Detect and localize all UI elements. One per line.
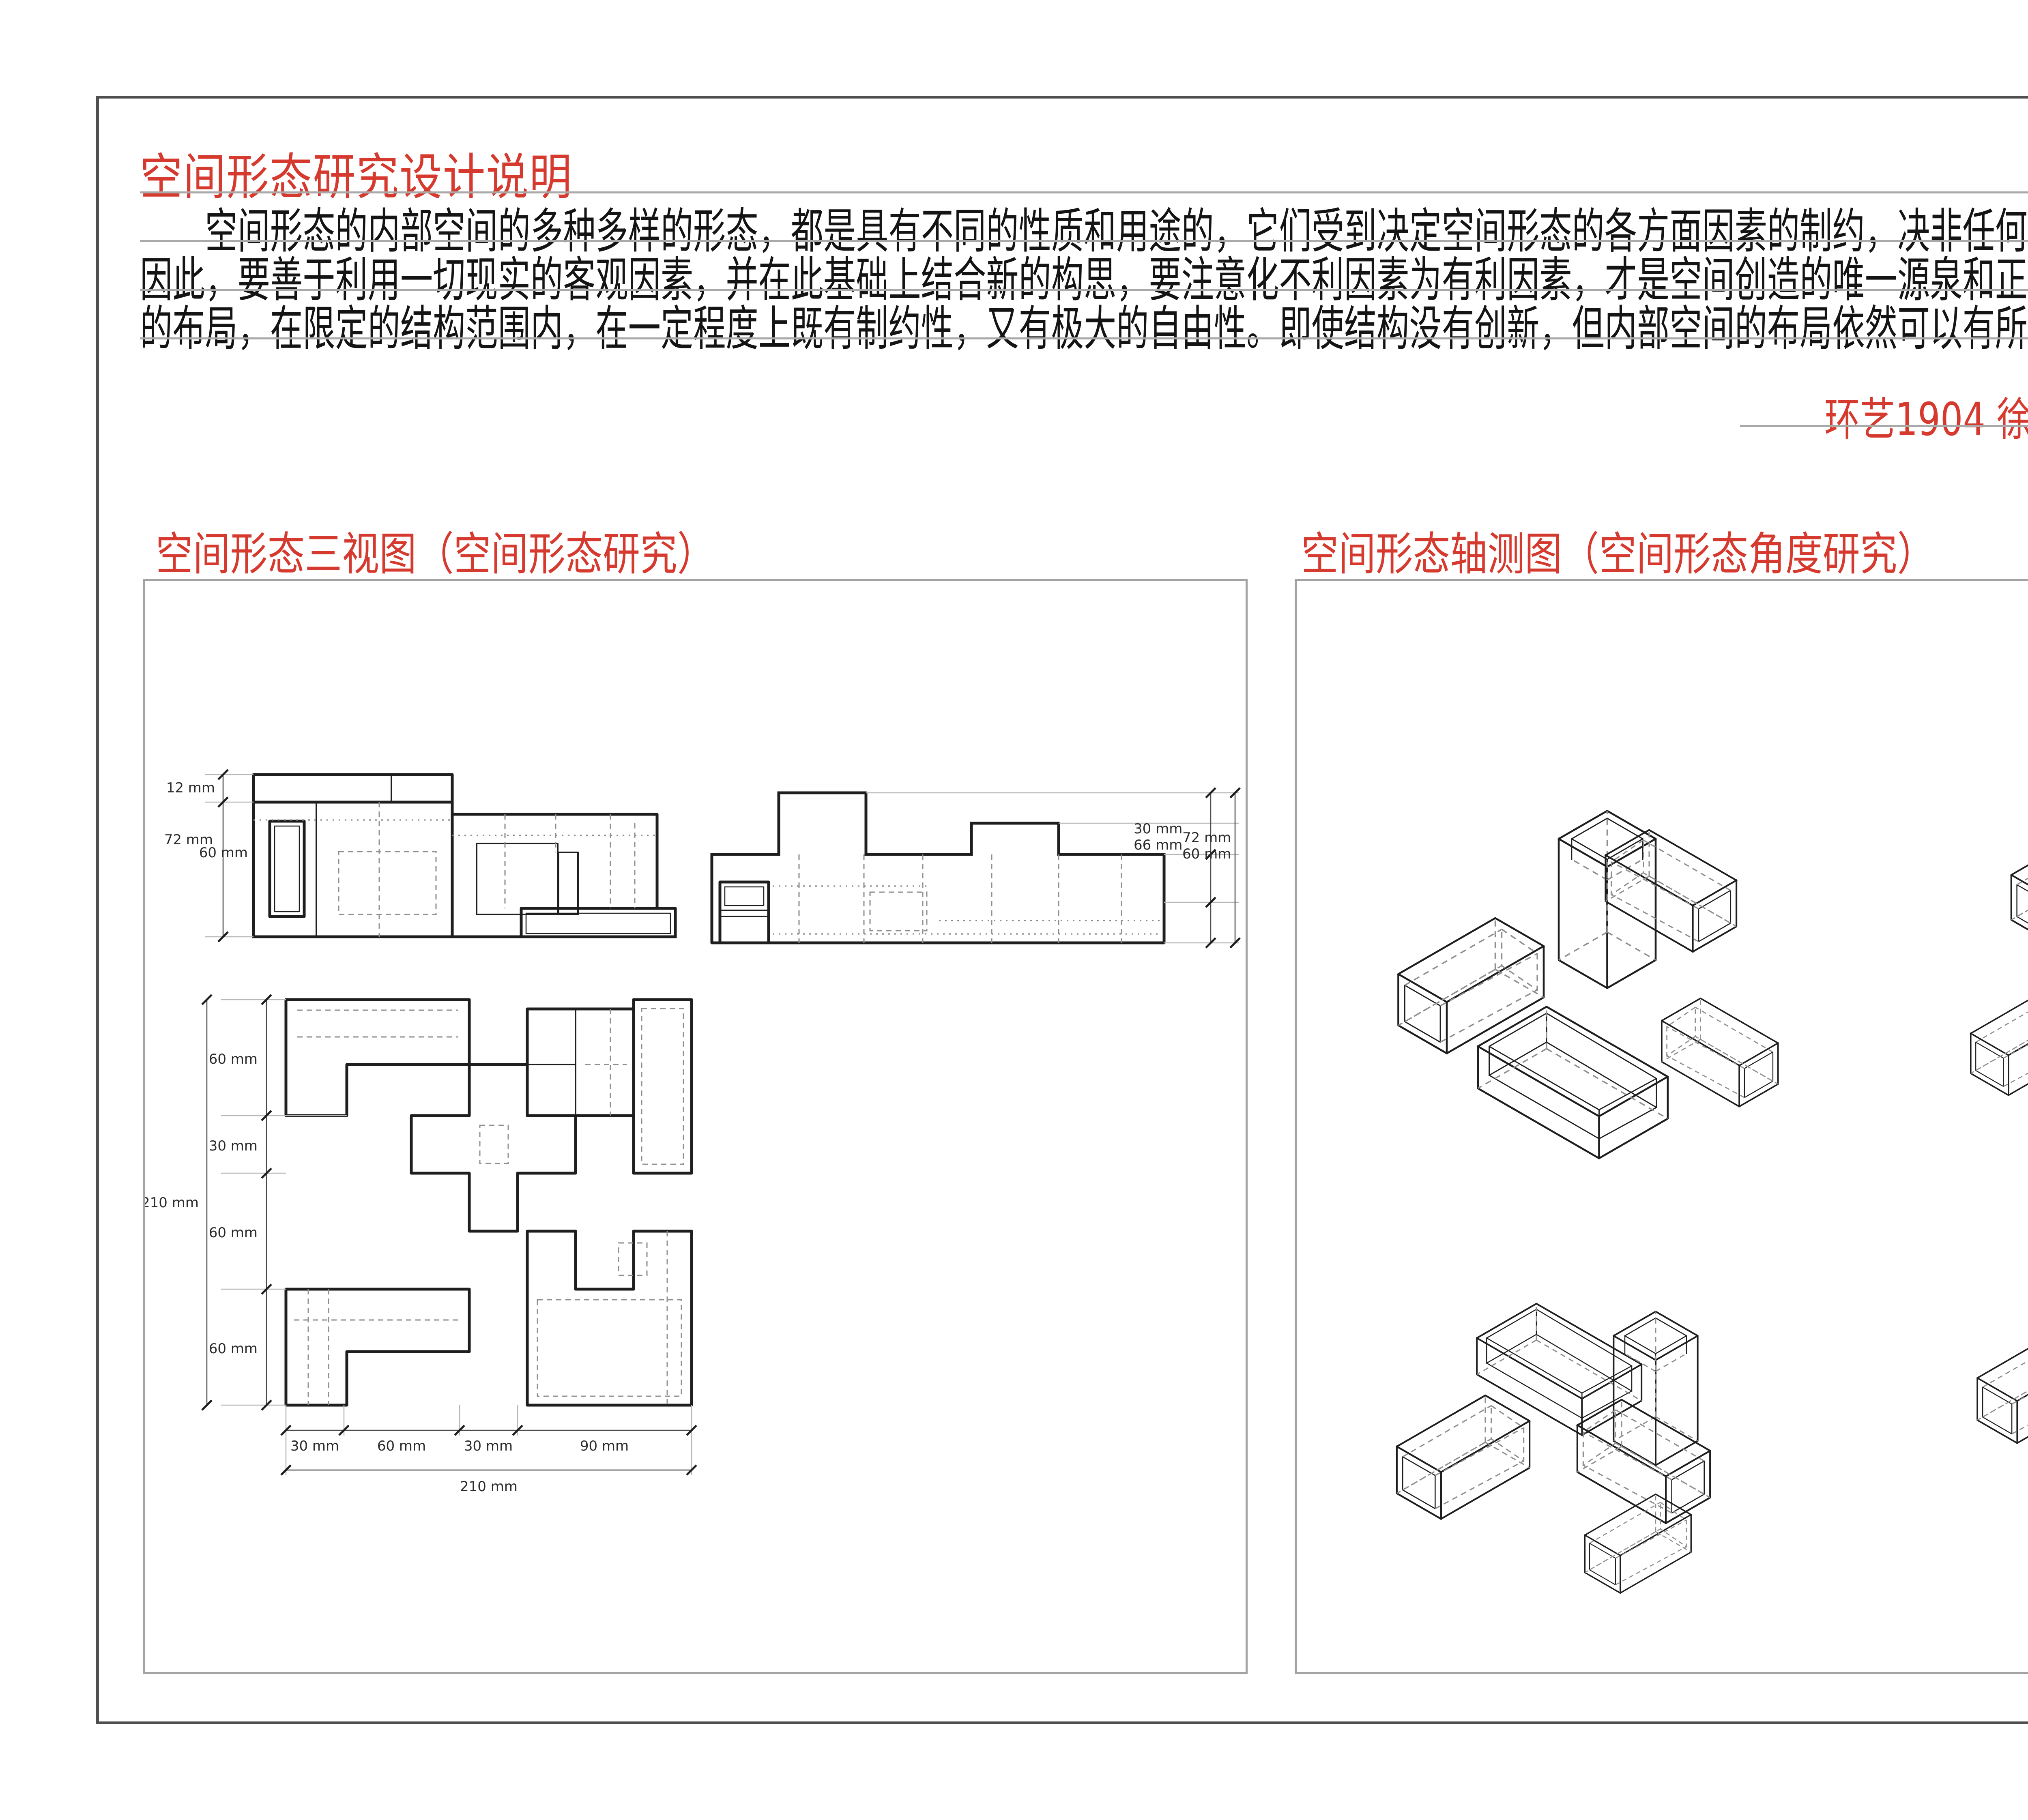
plan-dim-total-label: 210 mm bbox=[145, 1195, 199, 1211]
axon-view-2 bbox=[1971, 807, 2028, 1146]
paragraph-text-3: 的布局，在限定的结构范围内，在一定程度上既有制约性，又有极大的自由性。即使结构没… bbox=[140, 290, 2028, 359]
side-dim-label: 72 mm bbox=[1182, 830, 1231, 846]
axon-view-1 bbox=[1399, 811, 1778, 1159]
side-elevation-drawing: 30 mm 66 mm 72 mm 60 mm bbox=[712, 788, 1240, 948]
author-byline: 环艺1904 徐文雯 201940206 bbox=[1824, 383, 2028, 449]
plan-dim-label: 60 mm bbox=[209, 1225, 258, 1241]
three-view-drawing: 12 mm 72 mm 60 mm bbox=[145, 581, 1246, 1672]
author-byline-text: 环艺1904 徐文雯 201940206 bbox=[1824, 383, 2028, 449]
plan-dim-label: 30 mm bbox=[290, 1438, 339, 1454]
side-dim-label: 30 mm bbox=[1134, 821, 1182, 837]
plan-dim-label: 90 mm bbox=[580, 1438, 629, 1454]
paragraph-underline-3 bbox=[140, 337, 2028, 339]
front-dim-label: 12 mm bbox=[166, 780, 215, 796]
axon-view-3 bbox=[1397, 1304, 1710, 1593]
paragraph-line-3: 的布局，在限定的结构范围内，在一定程度上既有制约性，又有极大的自由性。即使结构没… bbox=[140, 290, 2028, 359]
plan-dim-total-label: 210 mm bbox=[460, 1479, 518, 1495]
axon-view-4 bbox=[1977, 1292, 2028, 1575]
axon-panel bbox=[1295, 579, 2028, 1674]
plan-dim-label: 60 mm bbox=[209, 1341, 258, 1357]
plan-dim-label: 30 mm bbox=[464, 1438, 513, 1454]
plan-drawing: 60 mm 30 mm 60 mm 60 mm 210 mm 30 mm 60 … bbox=[145, 995, 696, 1495]
three-view-panel: 12 mm 72 mm 60 mm bbox=[143, 579, 1248, 1674]
design-sheet: 空间形态研究设计说明 空间形态的内部空间的多种多样的形态，都是具有不同的性质和用… bbox=[0, 0, 2028, 1820]
side-dim-label: 66 mm bbox=[1134, 837, 1182, 853]
section-title-three-view: 空间形态三视图（空间形态研究） bbox=[156, 517, 837, 583]
front-elevation-drawing: 12 mm 72 mm 60 mm bbox=[164, 770, 675, 942]
axon-drawing bbox=[1297, 581, 2028, 1672]
section-title-axon-text: 空间形态轴测图（空间形态角度研究） bbox=[1301, 517, 1934, 583]
plan-dim-label: 60 mm bbox=[377, 1438, 426, 1454]
plan-dim-label: 30 mm bbox=[209, 1138, 258, 1154]
front-dim-label: 60 mm bbox=[199, 845, 248, 861]
plan-dim-label: 60 mm bbox=[209, 1051, 258, 1067]
byline-underline bbox=[1740, 425, 2028, 427]
section-title-three-view-text: 空间形态三视图（空间形态研究） bbox=[156, 517, 715, 583]
side-dim-label: 60 mm bbox=[1182, 846, 1231, 862]
section-title-axon: 空间形态轴测图（空间形态角度研究） bbox=[1301, 517, 2028, 583]
